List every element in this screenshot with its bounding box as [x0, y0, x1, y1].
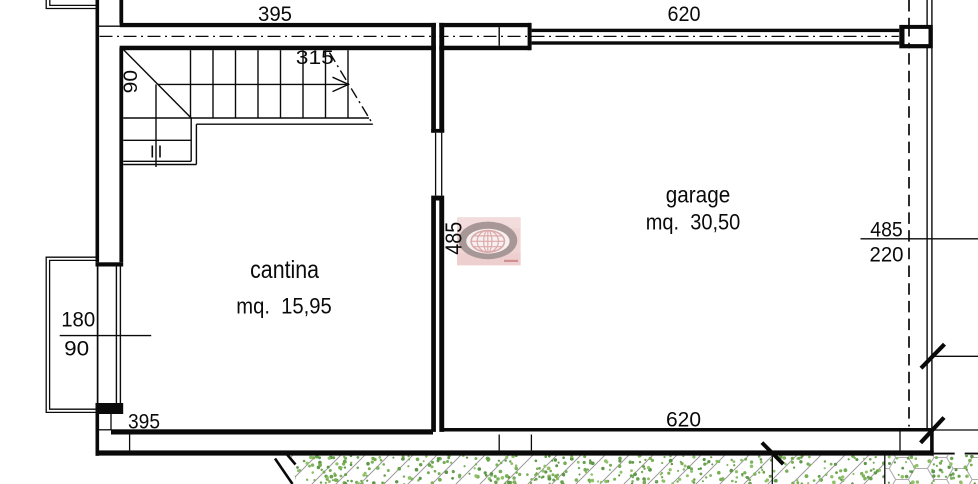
svg-text:cantina: cantina [250, 256, 319, 284]
svg-text:620: 620 [666, 408, 701, 431]
svg-text:mq. 30,50: mq. 30,50 [646, 210, 741, 235]
svg-text:mq. 15,95: mq. 15,95 [236, 293, 332, 318]
svg-text:485: 485 [870, 219, 903, 242]
svg-text:315: 315 [296, 47, 334, 69]
svg-text:395: 395 [258, 3, 292, 26]
svg-text:90: 90 [120, 70, 142, 94]
svg-text:90: 90 [64, 338, 89, 361]
svg-text:620: 620 [668, 3, 701, 26]
svg-text:395: 395 [128, 411, 160, 434]
svg-text:220: 220 [870, 243, 904, 266]
svg-text:485: 485 [441, 222, 467, 255]
svg-text:180: 180 [61, 308, 95, 331]
svg-text:garage: garage [666, 181, 731, 207]
